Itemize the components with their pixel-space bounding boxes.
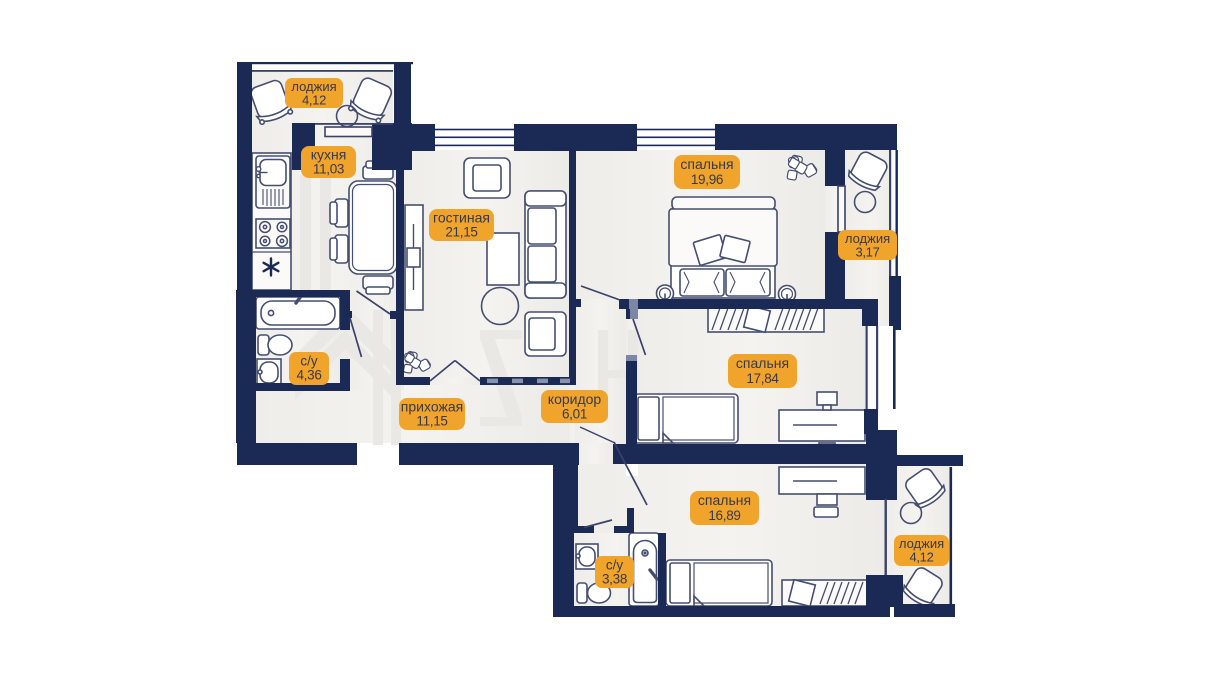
svg-text:4,12: 4,12 xyxy=(302,93,326,108)
svg-text:с/у: с/у xyxy=(300,354,318,369)
svg-text:спальня: спальня xyxy=(736,355,789,371)
svg-text:коридор: коридор xyxy=(548,391,602,407)
svg-text:спальня: спальня xyxy=(680,156,733,172)
svg-text:3,17: 3,17 xyxy=(855,245,879,260)
svg-text:3,38: 3,38 xyxy=(602,572,627,587)
svg-text:прихожая: прихожая xyxy=(401,399,463,415)
svg-text:11,03: 11,03 xyxy=(313,162,344,177)
svg-text:16,89: 16,89 xyxy=(708,508,740,523)
svg-text:11,15: 11,15 xyxy=(416,414,447,429)
svg-text:кухня: кухня xyxy=(311,147,347,163)
svg-text:с/у: с/у xyxy=(606,558,624,573)
svg-text:17,84: 17,84 xyxy=(746,371,779,386)
svg-text:4,12: 4,12 xyxy=(909,550,933,565)
svg-text:4,36: 4,36 xyxy=(296,368,321,383)
svg-text:21,15: 21,15 xyxy=(445,225,477,240)
svg-text:гостиная: гостиная xyxy=(433,210,490,226)
svg-text:6,01: 6,01 xyxy=(562,407,587,422)
svg-text:19,96: 19,96 xyxy=(691,172,723,187)
svg-text:спальня: спальня xyxy=(698,492,751,508)
